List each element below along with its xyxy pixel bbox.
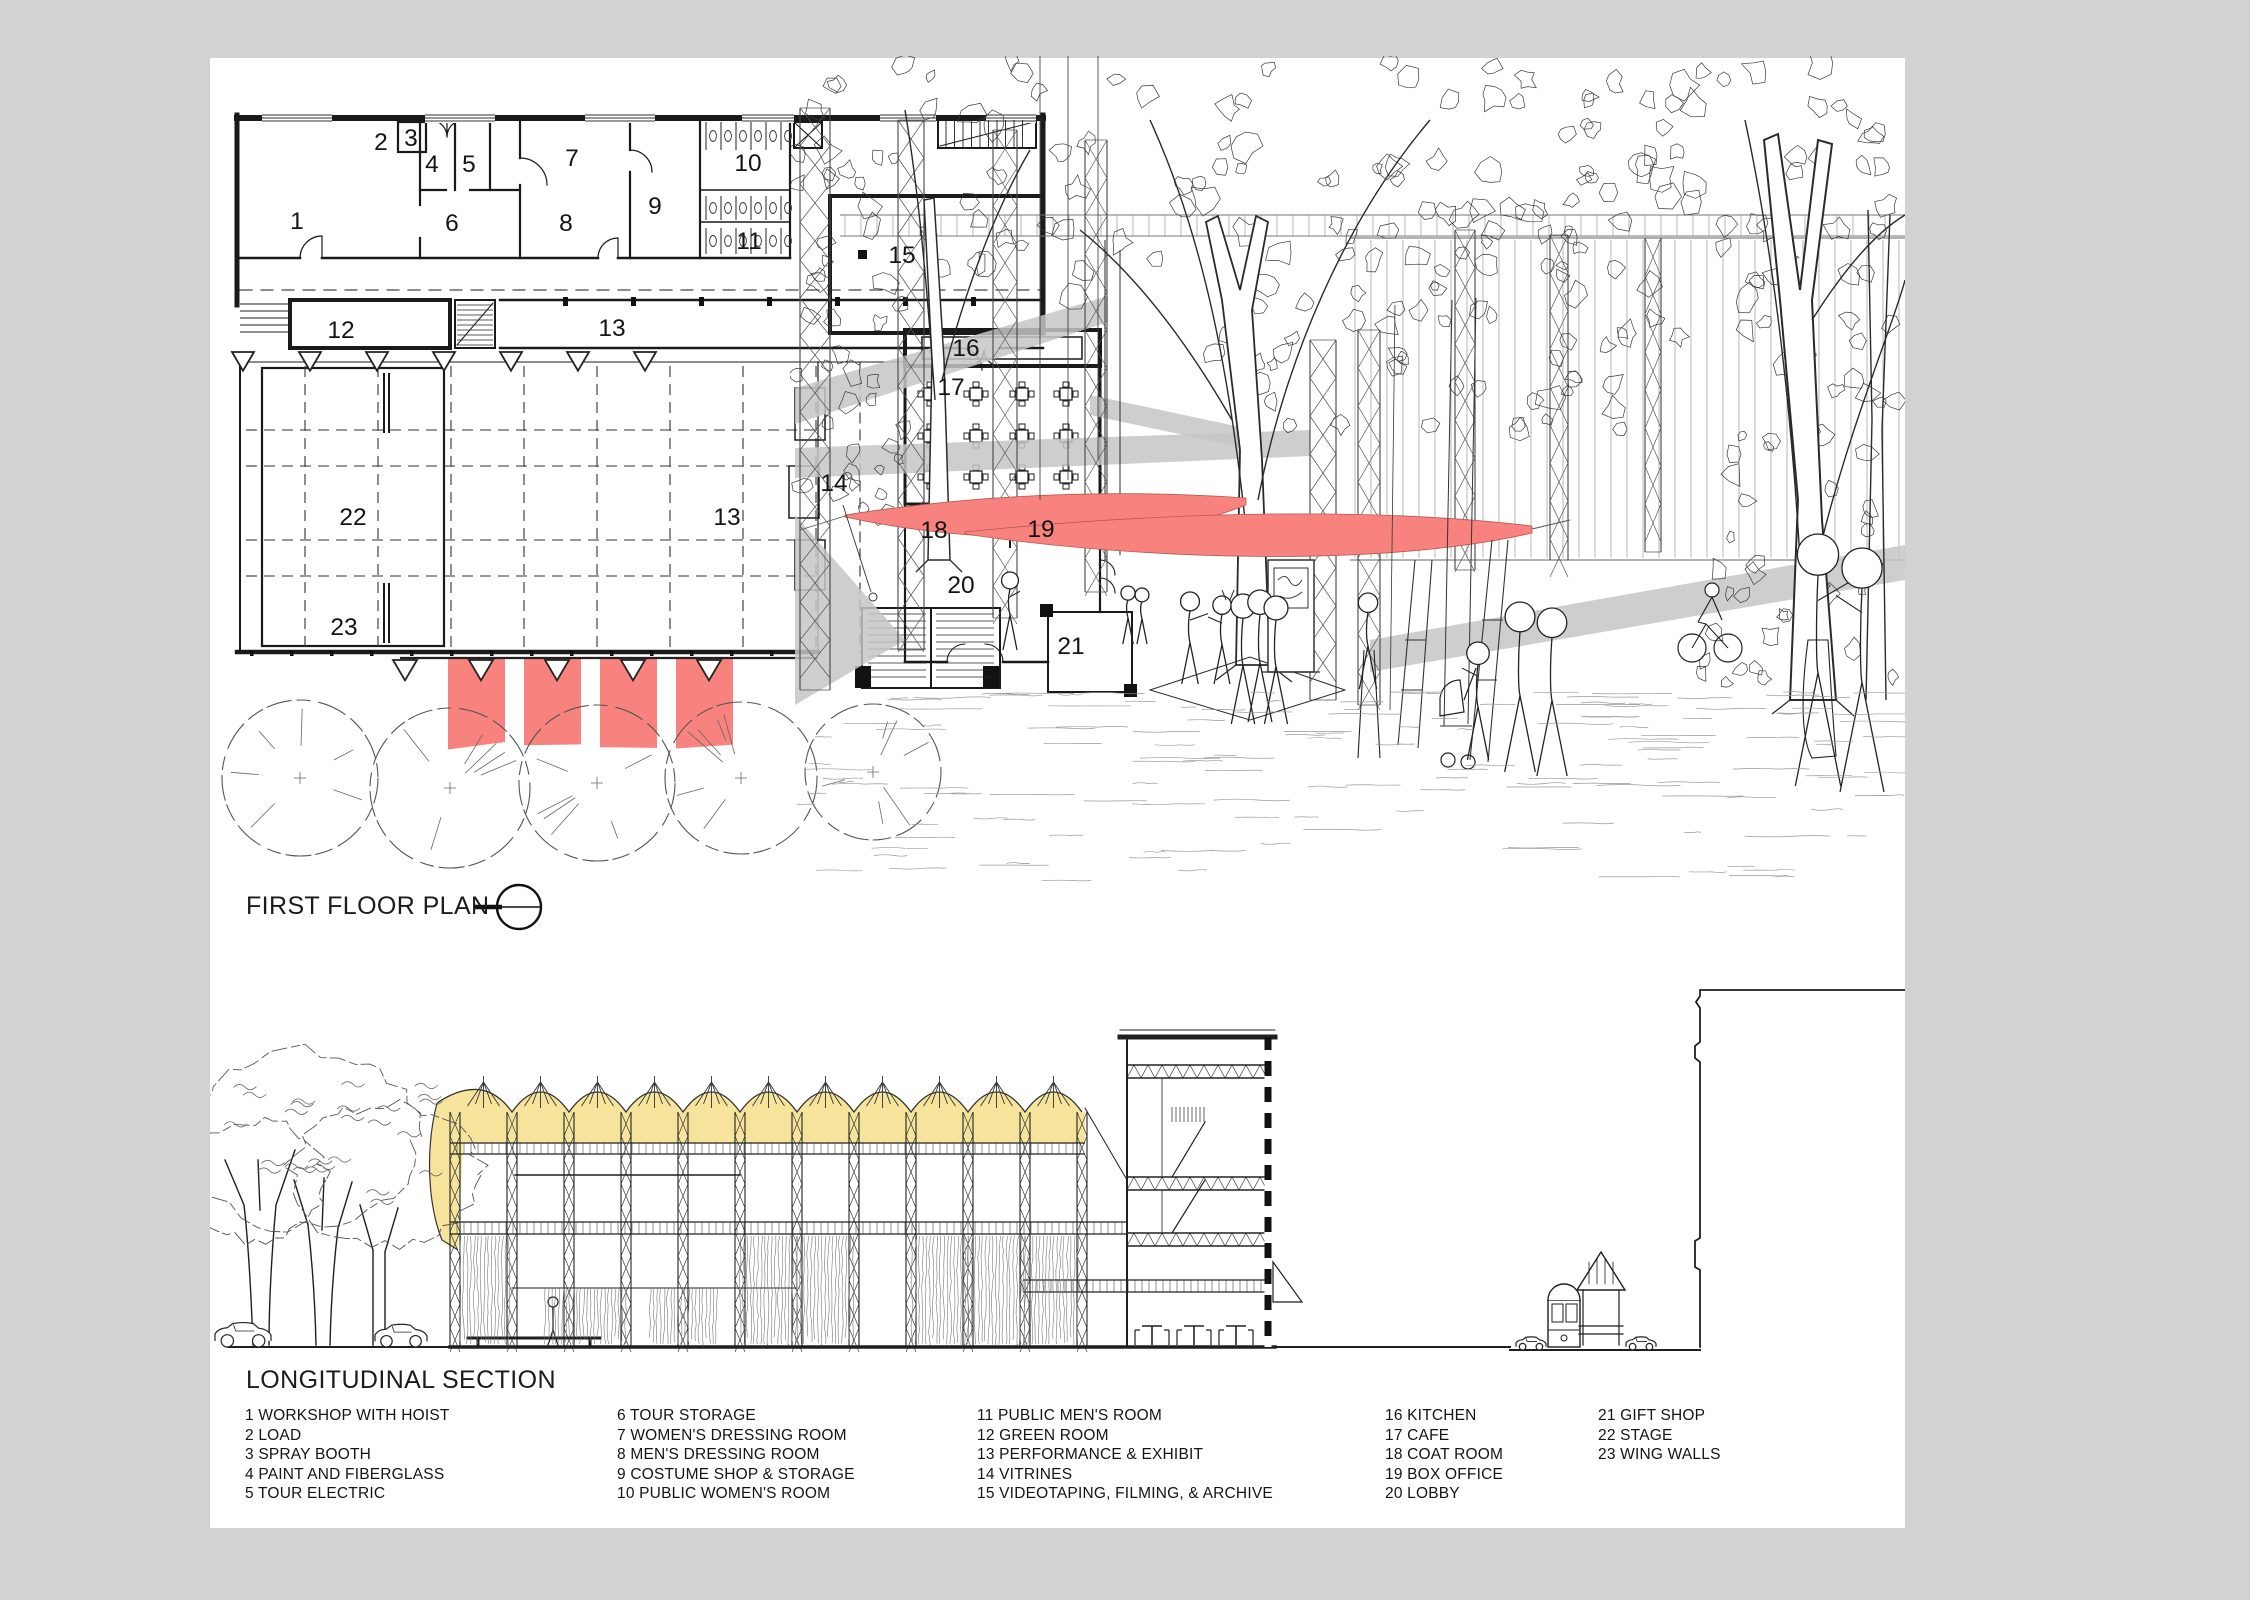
room-number: 1 [290,208,304,235]
room-number: 22 [339,504,366,531]
room-number: 2 [374,129,388,156]
room-number: 13 [598,315,625,342]
room-number: 19 [1027,516,1054,543]
paper-sheet [210,58,1905,1528]
architecture-presentation-board: 123456789101112131314151617181920212223 … [0,0,2250,1600]
room-number: 5 [462,151,476,178]
room-number: 18 [920,517,947,544]
room-number: 21 [1057,633,1084,660]
room-number: 17 [937,374,964,401]
room-number: 10 [734,150,761,177]
room-number: 11 [736,228,761,255]
room-number: 8 [559,210,573,237]
room-number: 4 [425,151,439,178]
room-number: 12 [327,317,354,344]
room-number: 9 [648,193,662,220]
room-number: 13 [713,504,740,531]
room-number: 6 [445,210,459,237]
room-number: 16 [952,335,979,362]
room-number: 14 [820,470,847,497]
section-title: LONGITUDINAL SECTION [246,1366,556,1395]
board-artwork: 123456789101112131314151617181920212223 [0,0,2250,1600]
room-number: 20 [947,572,974,599]
room-number: 23 [330,614,357,641]
room-number: 7 [565,145,579,172]
room-number: 3 [404,125,418,152]
plan-title: FIRST FLOOR PLAN [246,892,490,921]
room-number: 15 [888,242,915,269]
